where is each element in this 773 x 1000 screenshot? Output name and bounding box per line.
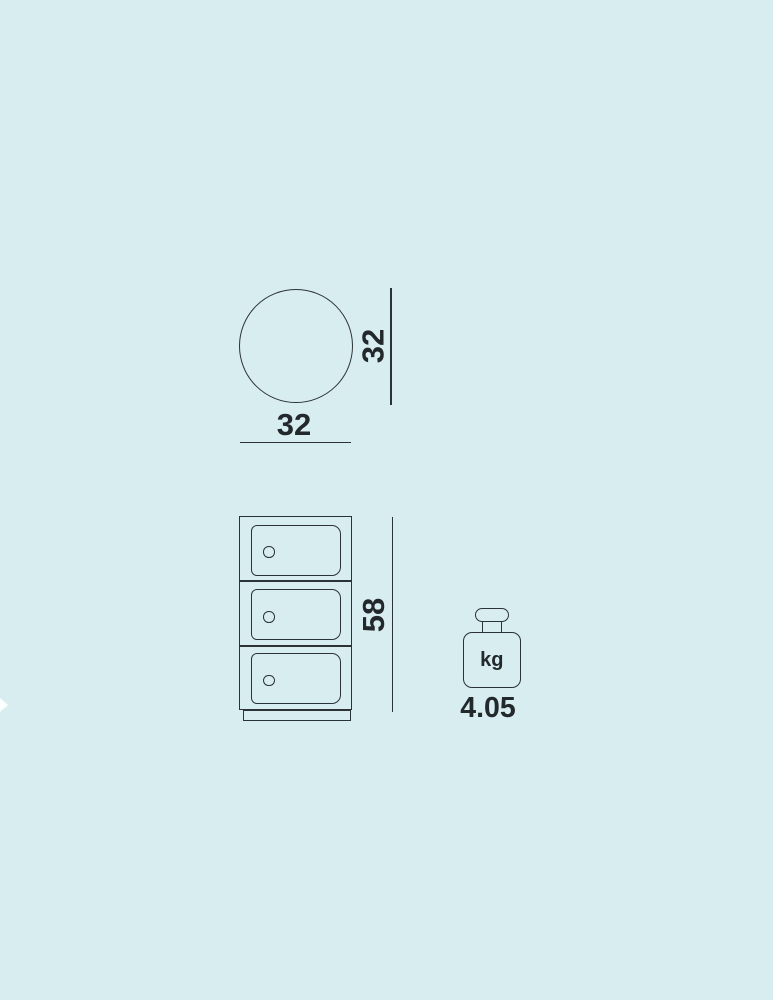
weight-value-label: 4.05 xyxy=(438,694,538,722)
depth-dimension-label: 32 xyxy=(353,306,393,387)
edge-artifact xyxy=(0,698,8,712)
drawer-handle-icon xyxy=(263,546,275,558)
height-dimension-label: 58 xyxy=(353,575,393,655)
top-view-circle xyxy=(239,289,353,403)
width-dimension-label: 32 xyxy=(254,404,334,444)
product-dimension-diagram: 32 32 58 kg 4.05 xyxy=(0,0,773,1000)
cabinet-section-divider xyxy=(239,580,352,582)
drawer-front xyxy=(251,653,341,704)
weight-icon-knob xyxy=(475,608,509,623)
drawer-front xyxy=(251,525,341,576)
cabinet-base xyxy=(243,710,351,721)
weight-icon: kg xyxy=(463,632,521,688)
drawer-front xyxy=(251,589,341,640)
weight-unit-label: kg xyxy=(480,650,503,670)
drawer-handle-icon xyxy=(263,611,275,623)
drawer-handle-icon xyxy=(263,675,275,687)
cabinet-section-divider xyxy=(239,645,352,647)
